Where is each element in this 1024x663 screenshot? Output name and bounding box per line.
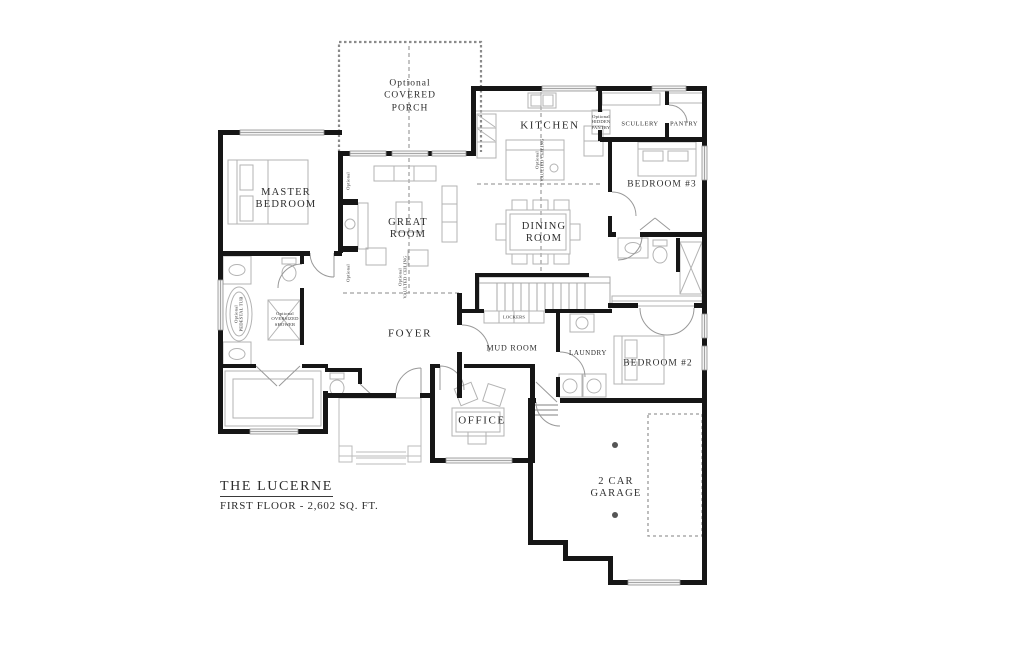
bedroom3-bed bbox=[638, 142, 696, 176]
stairs bbox=[479, 277, 610, 311]
front-stoop bbox=[339, 398, 421, 464]
annotation-pedestal-tub: Optional PEDESTAL TUB bbox=[234, 296, 245, 331]
master-bedroom-line2: BEDROOM bbox=[256, 199, 317, 211]
fireplace bbox=[345, 203, 368, 249]
annotation-hidden-pantry: Optional HIDDEN PANTRY bbox=[592, 114, 611, 130]
gr-ceiling-line2: VAULTED CEILING bbox=[403, 255, 408, 298]
covered-porch-line3: PORCH bbox=[384, 102, 436, 114]
room-label-mud-room: MUD ROOM bbox=[486, 343, 537, 352]
room-label-pantry: PANTRY bbox=[670, 120, 698, 127]
plan-name: THE LUCERNE bbox=[220, 479, 333, 497]
room-label-covered-porch: Optional COVERED PORCH bbox=[384, 77, 436, 114]
annotation-fireplace-optional-upper: Optional bbox=[345, 172, 350, 190]
oversized-shower-line2: OVERSIZED bbox=[271, 316, 298, 321]
kitchen-ceiling-line2: VAULTED CEILING bbox=[540, 138, 545, 181]
room-label-bedroom-3: BEDROOM #3 bbox=[627, 180, 696, 191]
floor-plan-page: Optional COVERED PORCH KITCHEN SCULLERY … bbox=[0, 0, 1024, 663]
garage-line2: GARAGE bbox=[591, 488, 642, 500]
room-label-master-bedroom: MASTER BEDROOM bbox=[256, 187, 317, 211]
powder-toilet bbox=[330, 373, 344, 396]
great-room-line2: ROOM bbox=[388, 229, 428, 241]
annotation-fireplace-optional-lower: Optional bbox=[345, 264, 350, 282]
hidden-pantry-line3: PANTRY bbox=[592, 125, 611, 130]
room-label-office: OFFICE bbox=[458, 415, 506, 428]
master-bedroom-line1: MASTER bbox=[256, 187, 317, 199]
room-label-bedroom-2: BEDROOM #2 bbox=[623, 359, 692, 370]
room-label-kitchen: KITCHEN bbox=[520, 120, 579, 133]
garage-line1: 2 CAR bbox=[591, 476, 642, 488]
scullery-counter bbox=[602, 93, 704, 105]
pedestal-tub-line2: PEDESTAL TUB bbox=[239, 296, 244, 331]
room-label-scullery: SCULLERY bbox=[621, 120, 658, 127]
annotation-lockers: LOCKERS bbox=[503, 314, 525, 319]
room-label-garage: 2 CAR GARAGE bbox=[591, 476, 642, 500]
annotation-great-room-vaulted-ceiling: Optional VAULTED CEILING bbox=[398, 255, 409, 298]
room-label-great-room: GREAT ROOM bbox=[388, 217, 428, 241]
oversized-shower-line3: SHOWER bbox=[271, 322, 298, 327]
floor-square-footage: FIRST FLOOR - 2,602 SQ. FT. bbox=[220, 500, 378, 512]
dining-room-line1: DINING bbox=[522, 221, 567, 233]
great-room-line1: GREAT bbox=[388, 217, 428, 229]
dining-room-line2: ROOM bbox=[522, 233, 567, 245]
room-label-dining-room: DINING ROOM bbox=[522, 221, 567, 245]
title-block: THE LUCERNE FIRST FLOOR - 2,602 SQ. FT. bbox=[220, 477, 378, 512]
floor-plan-drawing bbox=[0, 0, 1024, 663]
garage-post-2 bbox=[612, 512, 618, 518]
annotation-kitchen-vaulted-ceiling: Optional VAULTED CEILING bbox=[535, 138, 546, 181]
covered-porch-line1: Optional bbox=[384, 77, 436, 89]
room-label-laundry: LAUNDRY bbox=[569, 349, 607, 357]
garage-post-1 bbox=[612, 442, 618, 448]
annotation-oversized-shower: Optional OVERSIZED SHOWER bbox=[271, 311, 298, 327]
master-closet-shelves bbox=[225, 371, 321, 426]
garage-storage-dashed bbox=[648, 414, 702, 536]
hidden-pantry-line2: HIDDEN bbox=[592, 119, 611, 124]
hall-bath-fixtures bbox=[612, 238, 702, 306]
covered-porch-line2: COVERED bbox=[384, 90, 436, 102]
room-label-foyer: FOYER bbox=[388, 328, 432, 341]
